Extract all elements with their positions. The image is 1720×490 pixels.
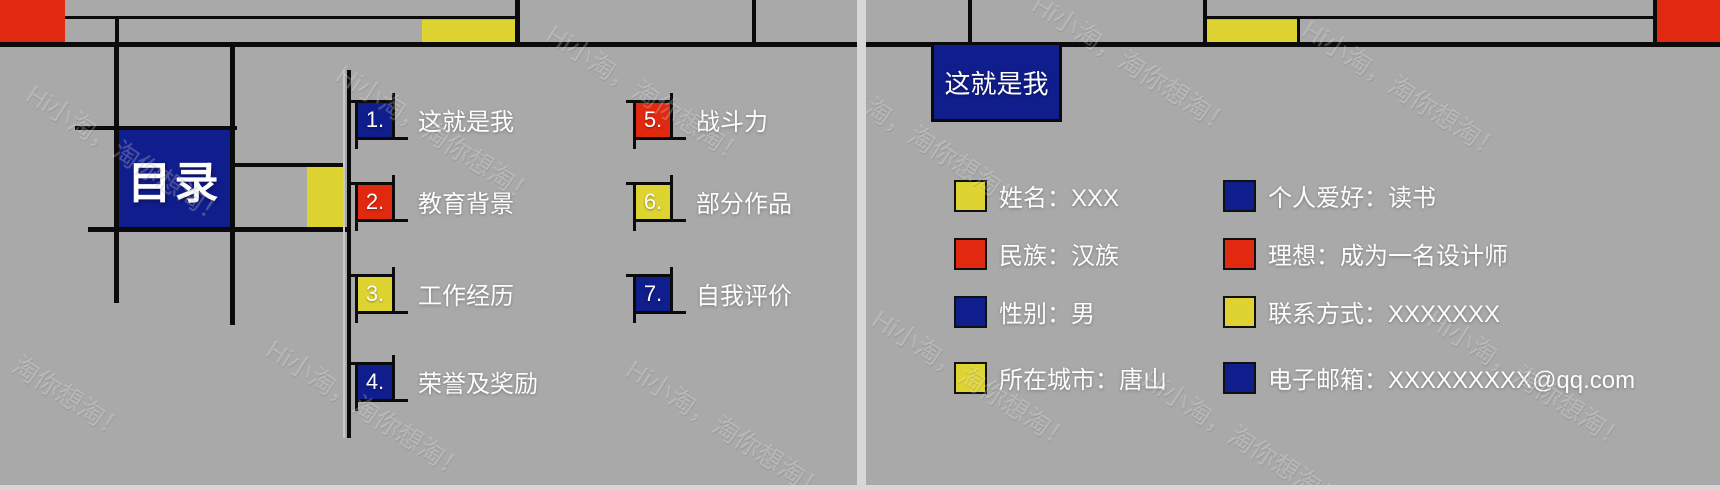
template-preview: 目录 1. 这就是我 2. 教育背景 3. 工作经历 xyxy=(0,0,1720,490)
crop-mark xyxy=(355,274,358,323)
slide-title: 这就是我 xyxy=(944,64,1048,101)
crop-mark xyxy=(355,362,358,411)
toc-item-1[interactable]: 1. 这就是我 xyxy=(358,102,514,137)
toc-badge: 6. xyxy=(636,185,670,219)
crop-mark xyxy=(633,182,636,231)
main-horizontal-line xyxy=(0,42,857,47)
toc-number: 1. xyxy=(366,107,384,133)
crop-mark xyxy=(392,175,395,222)
color-swatch xyxy=(1223,296,1256,328)
info-ethnicity: 民族：汉族 xyxy=(954,236,1119,271)
mondrian-red-block xyxy=(0,0,65,42)
toc-axis-line xyxy=(347,70,351,438)
toc-label: 部分作品 xyxy=(696,184,792,219)
crop-mark xyxy=(670,175,673,222)
toc-item-4[interactable]: 4. 荣誉及奖励 xyxy=(358,364,538,399)
info-label: 性别：男 xyxy=(999,294,1095,329)
info-email: 电子邮箱：XXXXXXXXX@qq.com xyxy=(1223,360,1635,395)
color-swatch xyxy=(954,180,987,212)
crop-mark xyxy=(670,267,673,314)
mondrian-red-block xyxy=(1657,0,1720,42)
toc-number: 6. xyxy=(644,189,662,215)
info-label: 个人爱好：读书 xyxy=(1268,178,1436,213)
toc-axis-shadow-line xyxy=(343,70,345,438)
crop-mark xyxy=(392,267,395,314)
toc-title: 目录 xyxy=(128,147,222,211)
crop-mark xyxy=(634,311,686,314)
slide-about-me[interactable]: 这就是我 姓名：XXX 民族：汉族 性别：男 所在城市：唐山 个人爱好：读书 理… xyxy=(866,0,1720,485)
toc-number: 2. xyxy=(366,189,384,215)
mondrian-yellow-block xyxy=(1207,20,1297,42)
crop-mark xyxy=(356,137,408,140)
grid-line xyxy=(515,0,520,47)
toc-item-3[interactable]: 3. 工作经历 xyxy=(358,276,514,311)
grid-line xyxy=(1203,16,1655,19)
mondrian-yellow-block xyxy=(422,20,515,42)
info-label: 民族：汉族 xyxy=(999,236,1119,271)
mondrian-yellow-block xyxy=(307,167,345,227)
toc-badge: 5. xyxy=(636,103,670,137)
toc-badge: 1. xyxy=(358,103,392,137)
toc-number: 7. xyxy=(644,281,662,307)
slide-title-block: 这就是我 xyxy=(931,42,1062,122)
toc-number: 3. xyxy=(366,281,384,307)
info-gender: 性别：男 xyxy=(954,294,1095,329)
toc-item-2[interactable]: 2. 教育背景 xyxy=(358,184,514,219)
color-swatch xyxy=(954,362,987,394)
color-swatch xyxy=(1223,238,1256,270)
info-name: 姓名：XXX xyxy=(954,178,1119,213)
crop-mark xyxy=(670,93,673,140)
color-swatch xyxy=(1223,362,1256,394)
info-label: 联系方式：XXXXXXX xyxy=(1268,294,1500,329)
color-swatch xyxy=(954,238,987,270)
crop-mark xyxy=(634,219,686,222)
watermark-text: Hi小淘，淘你想淘！ xyxy=(1296,10,1511,168)
info-city: 所在城市：唐山 xyxy=(954,360,1167,395)
watermark-text: Hi小淘，淘你想淘！ xyxy=(540,15,755,173)
info-hobby: 个人爱好：读书 xyxy=(1223,178,1436,213)
grid-line xyxy=(752,0,756,47)
toc-badge: 3. xyxy=(358,277,392,311)
toc-label: 荣誉及奖励 xyxy=(418,364,538,399)
crop-mark xyxy=(356,219,408,222)
info-label: 姓名：XXX xyxy=(999,178,1119,213)
crop-mark xyxy=(356,399,408,402)
grid-line xyxy=(230,47,235,325)
grid-line xyxy=(88,227,347,232)
toc-item-6[interactable]: 6. 部分作品 xyxy=(636,184,792,219)
grid-line xyxy=(968,0,972,47)
color-swatch xyxy=(1223,180,1256,212)
toc-label: 战斗力 xyxy=(696,102,768,137)
toc-number: 4. xyxy=(366,369,384,395)
crop-mark xyxy=(634,137,686,140)
crop-mark xyxy=(633,274,636,323)
grid-line xyxy=(65,16,515,19)
toc-number: 5. xyxy=(644,107,662,133)
watermark-text: Hi小淘，淘你想淘！ xyxy=(260,330,475,485)
toc-label: 工作经历 xyxy=(418,276,514,311)
crop-mark xyxy=(392,355,395,402)
crop-mark xyxy=(355,182,358,231)
toc-title-block: 目录 xyxy=(119,130,230,227)
crop-mark xyxy=(633,100,636,149)
toc-item-5[interactable]: 5. 战斗力 xyxy=(636,102,768,137)
info-label: 电子邮箱：XXXXXXXXX@qq.com xyxy=(1268,360,1635,395)
grid-line xyxy=(115,16,119,42)
toc-label: 自我评价 xyxy=(696,276,792,311)
toc-badge: 2. xyxy=(358,185,392,219)
toc-label: 这就是我 xyxy=(418,102,514,137)
crop-mark xyxy=(392,93,395,140)
info-contact: 联系方式：XXXXXXX xyxy=(1223,294,1500,329)
grid-line xyxy=(1297,16,1300,42)
toc-item-7[interactable]: 7. 自我评价 xyxy=(636,276,792,311)
info-label: 所在城市：唐山 xyxy=(999,360,1167,395)
watermark-text: Hi小淘，淘你想淘！ xyxy=(0,290,135,448)
toc-label: 教育背景 xyxy=(418,184,514,219)
toc-badge: 7. xyxy=(636,277,670,311)
crop-mark xyxy=(355,100,358,149)
crop-mark xyxy=(356,311,408,314)
info-label: 理想：成为一名设计师 xyxy=(1268,236,1508,271)
toc-badge: 4. xyxy=(358,365,392,399)
info-dream: 理想：成为一名设计师 xyxy=(1223,236,1508,271)
slide-toc[interactable]: 目录 1. 这就是我 2. 教育背景 3. 工作经历 xyxy=(0,0,857,485)
color-swatch xyxy=(954,296,987,328)
watermark-text: Hi小淘，淘你想淘！ xyxy=(620,350,835,485)
